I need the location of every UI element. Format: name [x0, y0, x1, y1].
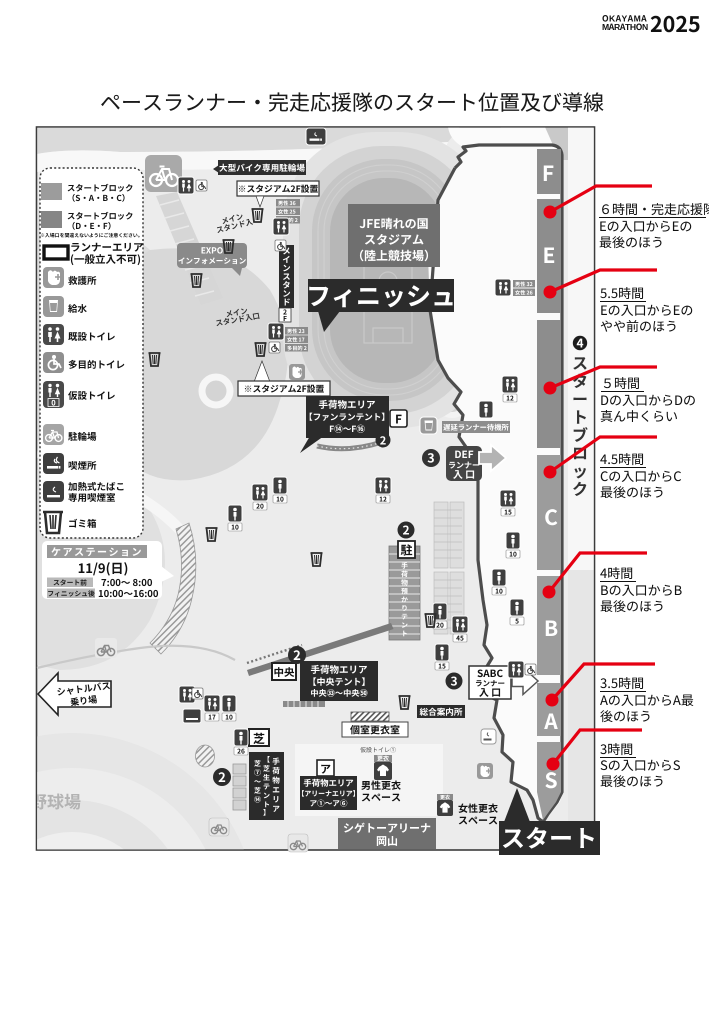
svg-text:【芝生テント】: 【芝生テント】 — [263, 755, 270, 818]
svg-text:20: 20 — [436, 620, 444, 630]
svg-text:2025: 2025 — [650, 8, 701, 39]
svg-text:2: 2 — [218, 767, 226, 786]
svg-text:10:00～16:00: 10:00～16:00 — [98, 586, 159, 600]
svg-text:3: 3 — [450, 673, 457, 690]
svg-text:インフォメーション: インフォメーション — [178, 256, 247, 267]
svg-text:F⑭～F⑯: F⑭～F⑯ — [329, 423, 365, 435]
svg-text:スタジアム: スタジアム — [364, 231, 424, 248]
svg-text:10: 10 — [509, 549, 517, 559]
svg-text:B: B — [544, 613, 558, 643]
svg-text:スタート: スタート — [501, 819, 597, 854]
svg-text:26: 26 — [237, 746, 245, 756]
svg-text:フィニッシュ後: フィニッシュ後 — [47, 588, 95, 598]
svg-text:中央: 中央 — [274, 665, 295, 680]
svg-text:ク: ク — [572, 476, 588, 500]
svg-text:【ファンランテント】: 【ファンランテント】 — [304, 411, 390, 423]
svg-text:最後のほう: 最後のほう — [599, 232, 664, 251]
svg-text:仮設トイレ: 仮設トイレ — [68, 388, 116, 402]
svg-text:C: C — [544, 502, 558, 532]
svg-text:【アリーナエリア】: 【アリーナエリア】 — [297, 788, 359, 798]
svg-text:手荷物エリア: 手荷物エリア — [272, 756, 280, 815]
svg-text:15: 15 — [504, 507, 512, 517]
svg-text:男性 32: 男性 32 — [515, 281, 533, 288]
svg-text:男性 36: 男性 36 — [278, 200, 296, 207]
svg-text:手荷物預かりテント: 手荷物預かりテント — [401, 560, 408, 638]
svg-text:F: F — [542, 158, 554, 188]
svg-text:中央㉝～中央㊿: 中央㉝～中央㊿ — [310, 687, 367, 699]
svg-text:メインスタンド: メインスタンド — [282, 245, 290, 308]
svg-text:やや前のほう: やや前のほう — [600, 316, 678, 335]
svg-text:男性 23: 男性 23 — [287, 328, 305, 335]
svg-text:ペースランナー・完走応援隊のスタート位置及び導線: ペースランナー・完走応援隊のスタート位置及び導線 — [100, 87, 604, 117]
svg-text:総合案内所: 総合案内所 — [420, 706, 463, 718]
svg-text:10: 10 — [231, 522, 239, 532]
svg-text:20: 20 — [256, 501, 264, 511]
svg-text:F: F — [283, 313, 287, 323]
svg-text:更衣: 更衣 — [377, 754, 389, 763]
svg-text:10: 10 — [276, 494, 284, 504]
svg-text:スペース: スペース — [458, 812, 498, 827]
svg-text:喫煙所: 喫煙所 — [68, 458, 97, 472]
svg-text:（S・A・B・C）: （S・A・B・C） — [67, 192, 130, 204]
svg-text:12: 12 — [506, 393, 514, 403]
svg-text:5: 5 — [515, 616, 519, 626]
svg-text:後のほう: 後のほう — [600, 706, 652, 725]
svg-text:既設トイレ: 既設トイレ — [68, 329, 116, 343]
svg-text:15: 15 — [438, 661, 446, 671]
svg-text:女性 17: 女性 17 — [287, 337, 305, 344]
svg-text:駐輪場: 駐輪場 — [68, 429, 97, 443]
svg-text:ケアステーション: ケアステーション — [51, 544, 143, 559]
svg-text:女性 26: 女性 26 — [515, 290, 533, 297]
svg-text:2: 2 — [402, 522, 409, 539]
svg-text:遅延ランナー待機所: 遅延ランナー待機所 — [443, 423, 509, 433]
svg-text:2: 2 — [380, 433, 387, 449]
svg-text:MARATHON: MARATHON — [602, 21, 648, 33]
svg-text:（D・E・F）: （D・E・F） — [67, 220, 116, 232]
svg-text:最後のほう: 最後のほう — [600, 771, 665, 790]
svg-text:17: 17 — [208, 712, 216, 722]
svg-text:3: 3 — [427, 448, 434, 467]
svg-text:E: E — [543, 240, 556, 270]
svg-text:入 口: 入 口 — [479, 684, 501, 699]
svg-text:ア①～ア⑥: ア①～ア⑥ — [310, 798, 348, 809]
svg-text:手荷物エリア: 手荷物エリア — [310, 662, 368, 676]
svg-text:4: 4 — [576, 335, 583, 352]
svg-text:救護所: 救護所 — [68, 273, 97, 287]
svg-text:手荷物エリア: 手荷物エリア — [318, 397, 376, 411]
svg-text:真ん中くらい: 真ん中くらい — [600, 406, 678, 425]
svg-text:A: A — [543, 706, 558, 736]
svg-text:大型バイク専用駐輪場: 大型バイク専用駐輪場 — [219, 162, 305, 174]
svg-text:（陸上競技場）: （陸上競技場） — [352, 247, 436, 264]
svg-text:※スタジアム2F設置: ※スタジアム2F設置 — [238, 182, 319, 195]
svg-text:※入場口を間違えないようにご注意ください。: ※入場口を間違えないようにご注意ください。 — [40, 232, 143, 239]
svg-text:野球場: 野球場 — [30, 788, 81, 813]
svg-text:岡山: 岡山 — [376, 833, 398, 849]
svg-text:ア: ア — [320, 761, 331, 777]
svg-text:スペース: スペース — [361, 789, 401, 804]
svg-text:45: 45 — [456, 633, 464, 643]
svg-text:仮設トイレ①: 仮設トイレ① — [360, 745, 396, 754]
svg-text:女性 25: 女性 25 — [278, 209, 296, 216]
svg-text:F: F — [395, 411, 402, 428]
svg-text:専用喫煙室: 専用喫煙室 — [68, 490, 116, 504]
svg-text:最後のほう: 最後のほう — [600, 596, 665, 615]
svg-text:DEF: DEF — [454, 446, 473, 461]
svg-text:2: 2 — [293, 645, 301, 664]
svg-text:(一般立入不可): (一般立入不可) — [70, 252, 141, 267]
svg-text:JFE晴れの国: JFE晴れの国 — [359, 215, 428, 232]
svg-text:フィニッシュ: フィニッシュ — [306, 277, 456, 313]
svg-text:芝⑦～芝⑭: 芝⑦～芝⑭ — [254, 759, 261, 805]
svg-text:スタート前: スタート前 — [53, 577, 87, 587]
svg-text:10: 10 — [495, 586, 503, 596]
svg-text:0: 0 — [51, 398, 56, 409]
svg-text:ゴミ箱: ゴミ箱 — [68, 516, 97, 530]
svg-text:更衣: 更衣 — [440, 794, 450, 801]
svg-text:多目的トイレ: 多目的トイレ — [68, 357, 125, 371]
svg-text:駐: 駐 — [400, 542, 412, 559]
svg-text:12: 12 — [379, 494, 387, 504]
svg-text:最後のほう: 最後のほう — [600, 482, 665, 501]
svg-text:個室更衣室: 個室更衣室 — [350, 722, 400, 737]
svg-text:芝: 芝 — [253, 730, 265, 747]
svg-text:多目的 2: 多目的 2 — [287, 345, 307, 352]
svg-text:10: 10 — [225, 712, 233, 722]
svg-text:入 口: 入 口 — [453, 466, 475, 481]
svg-text:※スタジアム2F設置: ※スタジアム2F設置 — [244, 382, 325, 395]
svg-text:給水: 給水 — [68, 301, 88, 315]
